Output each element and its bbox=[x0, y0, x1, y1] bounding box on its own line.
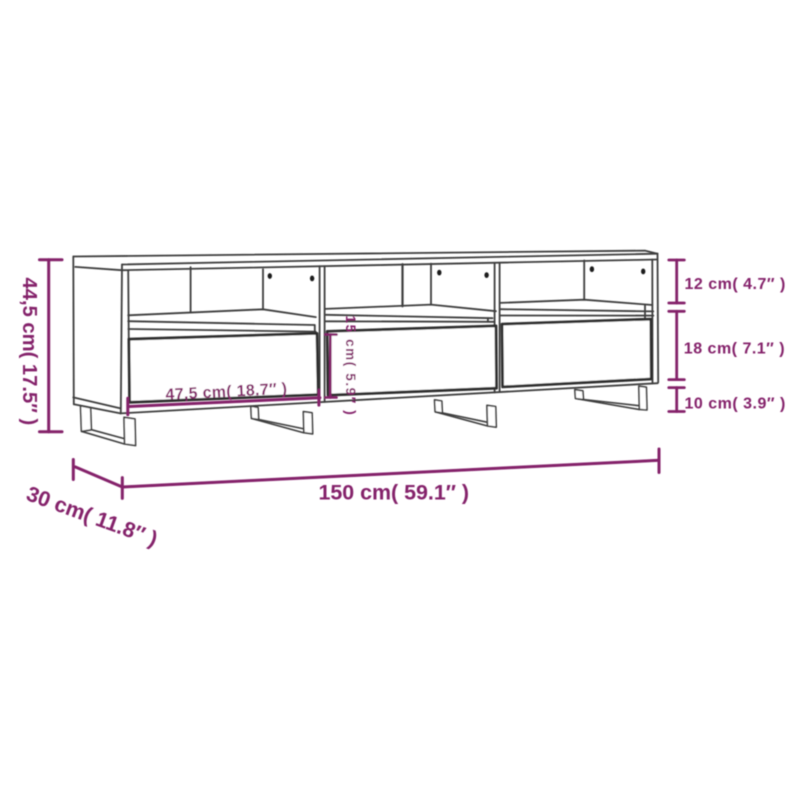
svg-text:18 cm( 7.1″ ): 18 cm( 7.1″ ) bbox=[684, 341, 785, 358]
svg-text:44,5 cm( 17.5″ ): 44,5 cm( 17.5″ ) bbox=[18, 278, 40, 426]
svg-text:15 cm( 5.9″ ): 15 cm( 5.9″ ) bbox=[343, 316, 358, 417]
svg-text:10 cm( 3.9″ ): 10 cm( 3.9″ ) bbox=[685, 396, 786, 413]
svg-text:30 cm( 11.8″ ): 30 cm( 11.8″ ) bbox=[23, 482, 160, 552]
svg-text:12 cm( 4.7″ ): 12 cm( 4.7″ ) bbox=[685, 276, 786, 293]
svg-text:150 cm( 59.1″ ): 150 cm( 59.1″ ) bbox=[319, 481, 470, 505]
